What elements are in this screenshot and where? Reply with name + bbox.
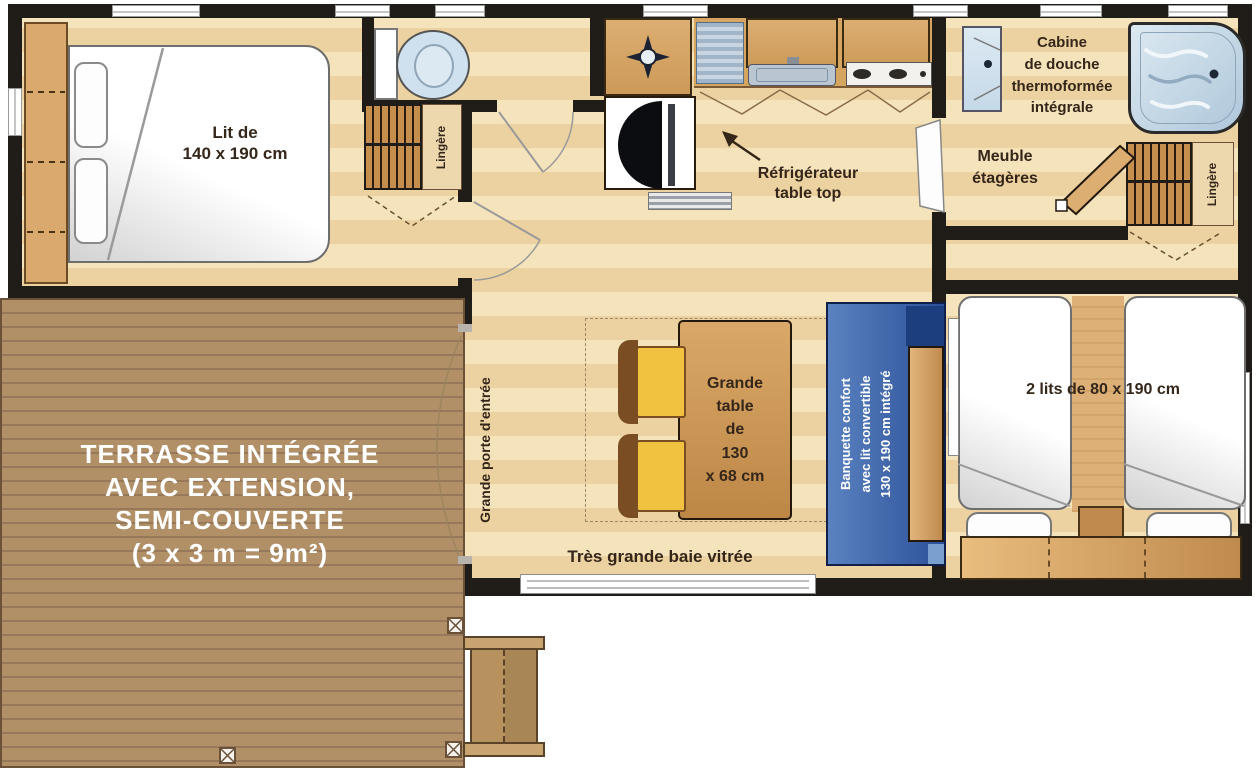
window <box>112 5 200 17</box>
interior-wall-bath-bottom <box>946 226 1128 240</box>
sink-drainer <box>696 22 744 84</box>
twin-headrest <box>966 512 1052 538</box>
window <box>913 5 968 17</box>
window <box>1040 5 1102 17</box>
lingere-right-label: Lingère <box>1206 162 1221 205</box>
banquette-corner-pad <box>928 544 944 564</box>
twin-beds-label: 2 lits de 80 x 190 cm <box>988 380 1218 400</box>
interior-wall-wc-bottom-b <box>573 100 604 112</box>
toilet-bowl-inner <box>414 44 454 88</box>
pillow <box>74 62 108 148</box>
twin-storage-bench <box>960 536 1242 580</box>
hob <box>846 62 932 86</box>
chair-seat <box>636 440 686 512</box>
twin-bed <box>958 296 1072 510</box>
twin-nightstand-column <box>1072 296 1124 512</box>
interior-wall-center-a <box>932 18 946 118</box>
entrance-door-label: Grande porte d'entrée <box>477 340 497 560</box>
bench-divider <box>1144 538 1146 578</box>
fridge-label: Réfrigérateur table top <box>740 164 876 204</box>
lingere-left-labelbox: Lingère <box>422 104 462 190</box>
master-bed-label: Lit de 140 x 190 cm <box>140 122 330 165</box>
interior-wall-center-b <box>932 212 946 314</box>
window <box>8 88 22 136</box>
shelf-label: Meuble étagères <box>946 146 1064 191</box>
bay-window <box>520 574 816 594</box>
lingere-left-unit <box>364 104 422 190</box>
window <box>335 5 390 17</box>
window <box>435 5 485 17</box>
banquette-dark-corner <box>906 306 944 346</box>
fridge-grille <box>648 192 732 210</box>
pillow <box>74 158 108 244</box>
interior-wall-hall-lower <box>458 278 472 300</box>
interior-wall-kitchen-left <box>590 18 604 96</box>
window <box>643 5 708 17</box>
twin-headrest <box>1146 512 1232 538</box>
terrace-label: TERRASSE INTÉGRÉE AVEC EXTENSION, SEMI-C… <box>25 438 435 570</box>
wall-left <box>8 4 22 300</box>
twin-bed <box>1124 296 1246 510</box>
floor-plan: Lit de 140 x 190 cm Lingère Réfrigérateu… <box>0 0 1259 768</box>
terrace-steps-bottom-board <box>463 742 545 757</box>
kitchen-cabinet <box>604 18 692 96</box>
bay-window-label: Très grande baie vitrée <box>505 546 815 567</box>
lingere-right-unit <box>1126 142 1192 226</box>
wardrobe <box>24 22 68 284</box>
toilet-tank <box>374 28 398 100</box>
shower-tray-inner <box>1140 32 1236 124</box>
fridge-unit <box>604 96 696 190</box>
twin-center-block <box>1078 506 1124 538</box>
lingere-right-labelbox: Lingère <box>1192 142 1234 226</box>
bench-divider <box>1048 538 1050 578</box>
banquette-label: Banquette confort avec lit convertible 1… <box>781 349 951 519</box>
chair-back <box>618 340 638 424</box>
terrace-steps-shade <box>505 650 536 742</box>
terrace-steps-top-board <box>463 636 545 650</box>
table-label: Grande table de 130 x 68 cm <box>678 372 792 488</box>
overhead-cupboard <box>746 18 838 68</box>
interior-wall-twin-top <box>946 280 1252 294</box>
kitchen-sink-basin <box>756 68 828 82</box>
chair-seat <box>636 346 686 418</box>
shower-label: Cabine de douche thermoformée intégrale <box>996 32 1128 119</box>
chair-back <box>618 434 638 518</box>
overhead-cupboard <box>842 18 930 68</box>
window <box>1168 5 1228 17</box>
interior-wall-wc-left <box>362 18 374 106</box>
lingere-left-label: Lingère <box>435 125 450 168</box>
